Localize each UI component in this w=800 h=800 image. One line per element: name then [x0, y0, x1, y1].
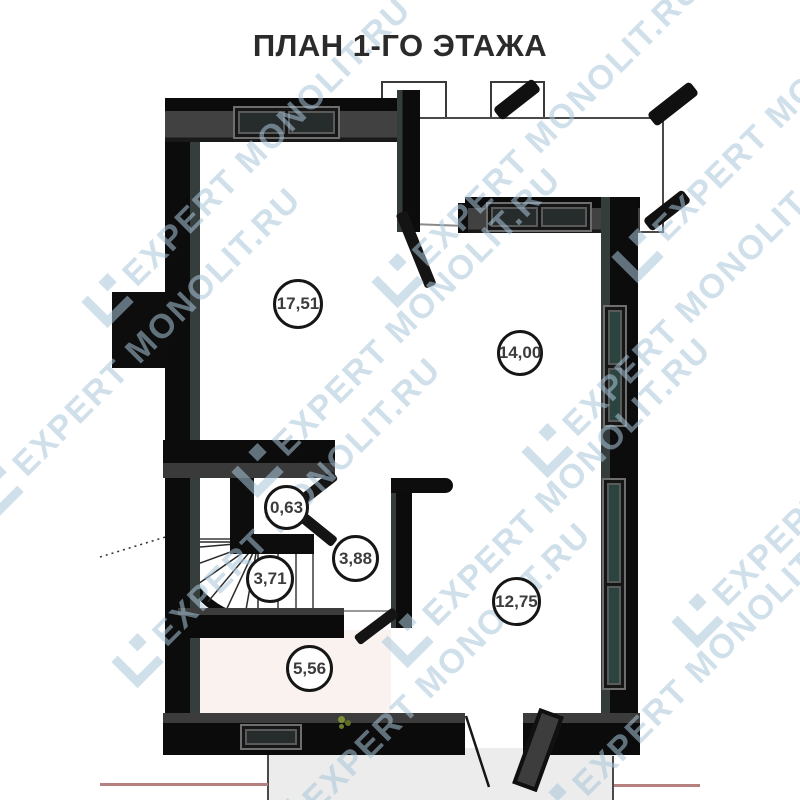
window-top-14-00 — [486, 202, 592, 232]
wall-top-14-00-step — [458, 203, 468, 233]
area-value: 17,51 — [277, 294, 320, 314]
area-value: 12,75 — [495, 592, 538, 612]
window-pane — [608, 368, 622, 423]
area-label-3-88: 3,88 — [332, 535, 379, 582]
drain-symbol — [345, 720, 351, 726]
wall-under-stairs — [178, 608, 344, 638]
wall-mid-vertical — [391, 478, 412, 628]
terrace-bottom-line — [637, 231, 664, 233]
window-pane — [491, 207, 538, 227]
wall-mid-flange — [391, 478, 453, 493]
window-pane — [608, 310, 622, 365]
area-value: 3,88 — [339, 549, 372, 569]
chimney-block — [112, 292, 168, 368]
entrance-door-swing-line — [466, 716, 489, 787]
window-pane — [288, 111, 335, 134]
area-label-17-51: 17,51 — [273, 279, 323, 329]
area-value: 3,71 — [253, 569, 286, 589]
terrace-top-line — [398, 117, 664, 119]
wall-left — [165, 98, 200, 755]
window-pane — [541, 207, 588, 227]
wall-bottom-left-section — [163, 713, 465, 755]
area-label-3-71: 3,71 — [246, 555, 294, 603]
area-value: 14,00 — [499, 343, 542, 363]
area-label-12-75: 12,75 — [492, 577, 541, 626]
window-pane — [607, 483, 621, 583]
window-pane — [238, 111, 285, 134]
window-pane — [607, 586, 621, 686]
wall-right-17-51 — [397, 90, 420, 232]
window-right-lower — [602, 478, 626, 690]
window-pane — [245, 729, 297, 745]
area-label-0-63: 0,63 — [264, 485, 309, 530]
area-label-5-56: 5,56 — [286, 645, 333, 692]
wall-closet-bottom — [230, 534, 314, 554]
window-bottom-5-56 — [240, 724, 302, 750]
drain-symbol — [338, 716, 345, 723]
window-top-17-51 — [233, 106, 340, 139]
page-title: ПЛАН 1-ГО ЭТАЖА — [0, 28, 800, 64]
wall-bottom-17-51 — [163, 440, 335, 478]
area-value: 0,63 — [270, 498, 303, 518]
drain-symbol — [339, 724, 344, 729]
area-label-14-00: 14,00 — [497, 330, 543, 376]
floor-plan-canvas: ПЛАН 1-ГО ЭТАЖА — [0, 0, 800, 800]
stair-direction-dotted-line — [100, 535, 172, 557]
window-right-upper — [603, 305, 627, 427]
area-value: 5,56 — [293, 659, 326, 679]
